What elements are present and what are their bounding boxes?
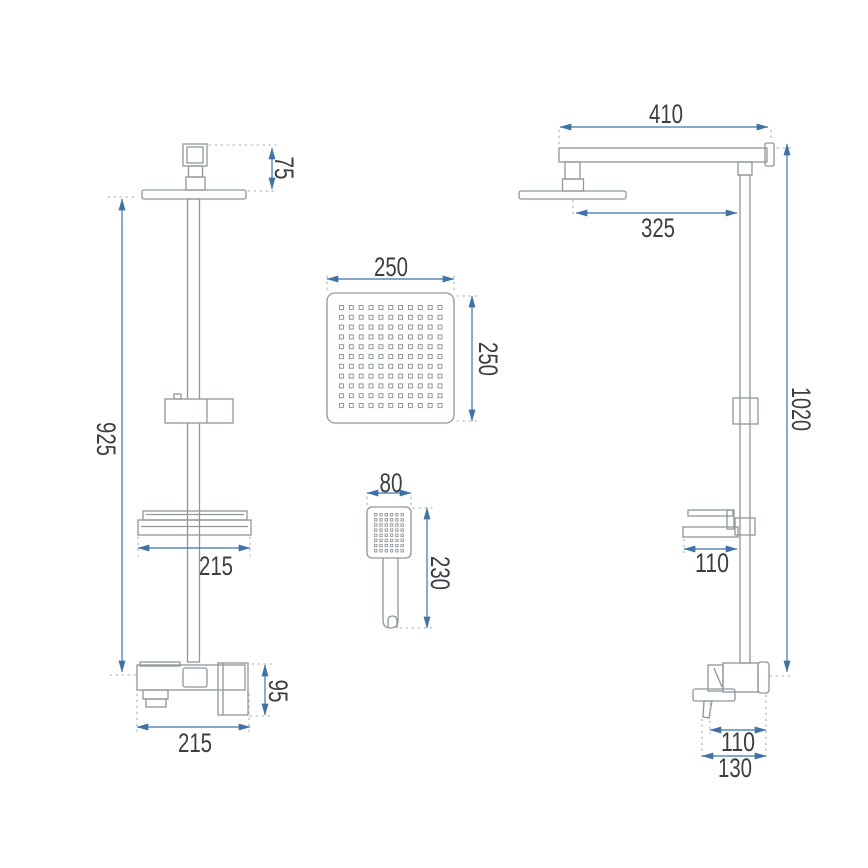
slider-knob bbox=[174, 394, 181, 399]
dim-label-head-reach: 325 bbox=[641, 213, 675, 243]
dim-label-handshower-width: 80 bbox=[380, 468, 403, 498]
dim-label-arm-length: 410 bbox=[649, 99, 683, 129]
front-view bbox=[137, 144, 251, 715]
mixer-spout-front bbox=[143, 690, 168, 699]
head-neck-side bbox=[565, 162, 580, 179]
dim-label-rail-height: 925 bbox=[91, 422, 121, 456]
riser-pipe-side bbox=[740, 175, 750, 663]
dim-label-mixer-height: 95 bbox=[263, 680, 293, 703]
dim-label-head-width: 250 bbox=[374, 252, 408, 282]
rain-head-side bbox=[519, 191, 626, 199]
dim-label-mixer-total-depth: 130 bbox=[718, 753, 752, 783]
connector-collar bbox=[186, 177, 205, 190]
shelf-rail-front bbox=[143, 511, 247, 520]
dim-label-head-drop: 75 bbox=[269, 157, 299, 180]
dimension-lines bbox=[122, 127, 787, 756]
mixer-valve-detail bbox=[714, 668, 722, 687]
dim-label-shelf-depth: 110 bbox=[695, 548, 729, 578]
ceiling-connector-inner bbox=[187, 147, 203, 163]
mixer-body-front bbox=[137, 665, 245, 690]
shelf-handle-side bbox=[688, 510, 733, 516]
mixer-lever-blade bbox=[703, 701, 712, 718]
mixer-wall-cap-side bbox=[758, 662, 769, 693]
connector-neck bbox=[189, 166, 203, 177]
technical-drawing-page: 75 925 215 95 215 250 250 80 230 410 325… bbox=[0, 0, 868, 868]
rain-head-front bbox=[142, 190, 246, 199]
mixer-body-side bbox=[723, 663, 758, 692]
nozzle-grid bbox=[338, 304, 445, 412]
top-arm-side bbox=[559, 148, 767, 162]
hand-shower-detail bbox=[367, 507, 411, 628]
head-joint-side bbox=[563, 179, 584, 191]
rain-head-detail bbox=[327, 293, 454, 423]
riser-pipe-front bbox=[188, 199, 200, 662]
hand-shower-nozzles bbox=[373, 512, 405, 553]
mixer-cartridge-front bbox=[183, 668, 207, 687]
mixer-valve-side bbox=[708, 665, 723, 691]
mixer-spout-lip bbox=[146, 699, 166, 707]
shelf-tray-front bbox=[138, 520, 251, 535]
dim-label-mixer-width: 215 bbox=[178, 728, 212, 758]
dim-label-shelf-width: 215 bbox=[199, 551, 233, 581]
slider-holder-front bbox=[165, 399, 233, 423]
slider-holder-side bbox=[733, 398, 758, 424]
pipe-connector-side bbox=[738, 162, 752, 175]
dim-label-handshower-height: 230 bbox=[425, 556, 455, 590]
shower-set-dimension-drawing: 75 925 215 95 215 250 250 80 230 410 325… bbox=[0, 0, 868, 868]
dim-label-total-height: 1020 bbox=[786, 387, 816, 431]
dim-label-head-height: 250 bbox=[473, 342, 503, 376]
